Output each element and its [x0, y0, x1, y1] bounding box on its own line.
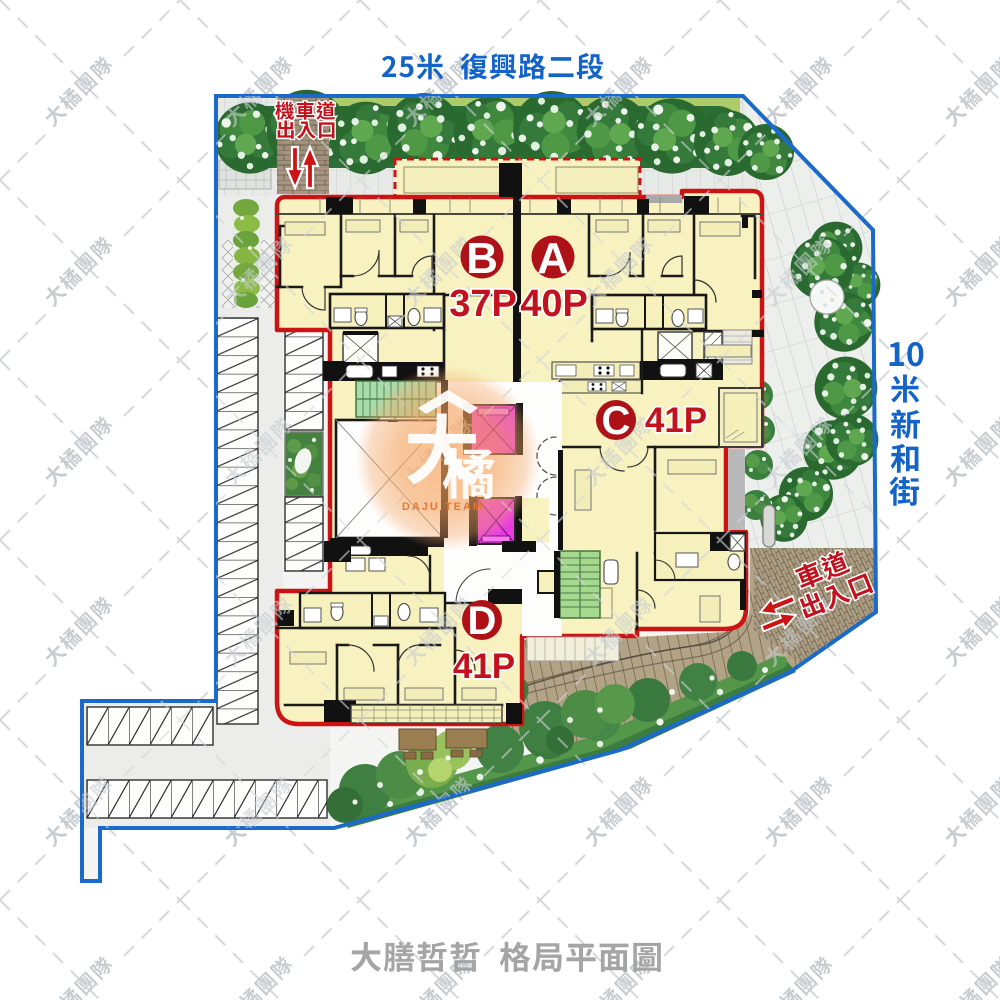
svg-text:A: A: [537, 234, 569, 283]
svg-text:DAJU TEAM: DAJU TEAM: [402, 501, 484, 513]
svg-text:41P: 41P: [645, 401, 707, 440]
svg-text:D: D: [468, 599, 497, 643]
svg-text:B: B: [466, 234, 498, 283]
svg-text:41P: 41P: [453, 647, 515, 686]
svg-text:40P: 40P: [520, 283, 588, 325]
svg-text:C: C: [602, 399, 631, 443]
svg-text:37P: 37P: [449, 283, 517, 325]
